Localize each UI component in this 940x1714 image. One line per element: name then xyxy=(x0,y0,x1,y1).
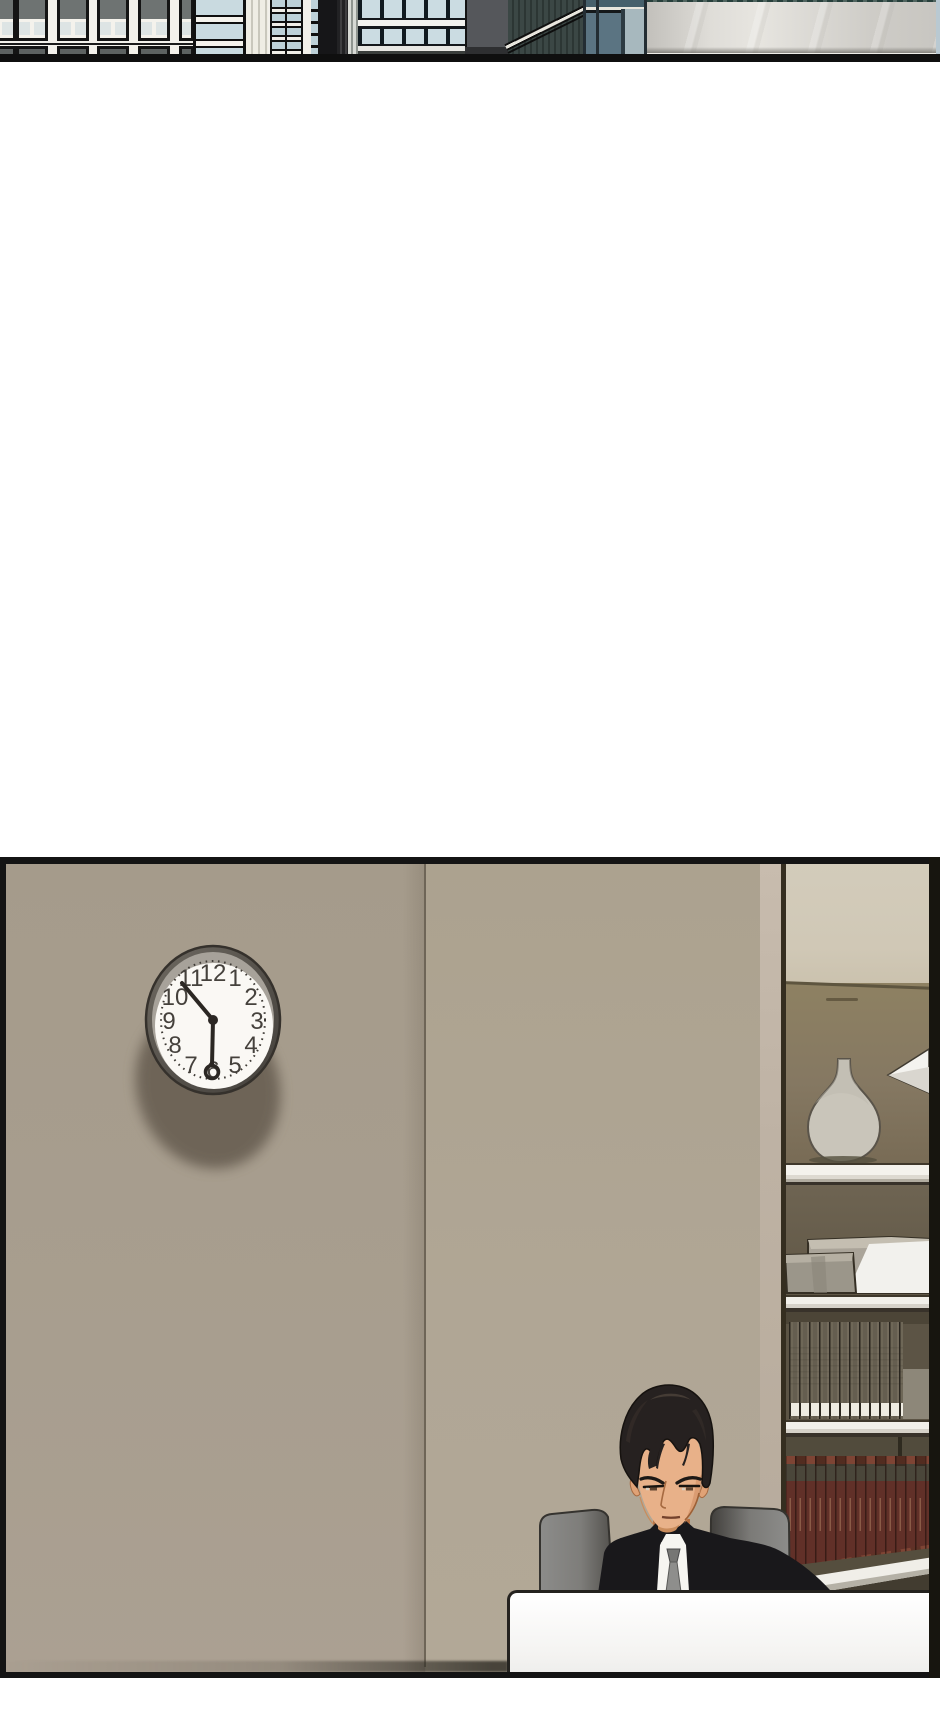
svg-text:12: 12 xyxy=(200,960,227,987)
svg-text:2: 2 xyxy=(244,984,257,1011)
svg-text:11: 11 xyxy=(179,965,204,992)
svg-text:1: 1 xyxy=(228,965,241,992)
svg-text:3: 3 xyxy=(250,1008,263,1035)
svg-text:9: 9 xyxy=(162,1008,175,1035)
svg-text:5: 5 xyxy=(228,1052,241,1079)
svg-text:4: 4 xyxy=(244,1032,257,1059)
svg-text:7: 7 xyxy=(184,1052,197,1079)
svg-text:8: 8 xyxy=(168,1032,181,1059)
